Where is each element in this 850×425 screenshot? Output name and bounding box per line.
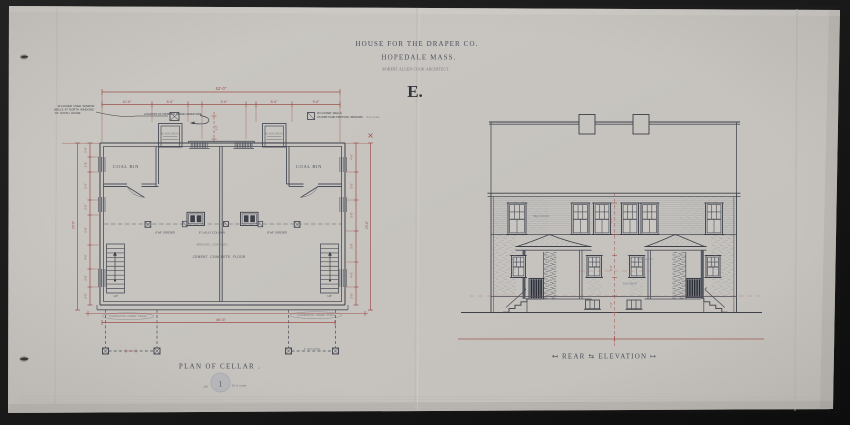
svg-text:PLAN OF CELLAR .: PLAN OF CELLAR . (179, 363, 261, 371)
svg-text:2'-6": 2'-6" (84, 204, 88, 209)
svg-text:UP: UP (327, 294, 331, 298)
svg-text:9" IRON PIPE: 9" IRON PIPE (304, 347, 320, 351)
svg-text:8'-6": 8'-6" (167, 100, 175, 104)
svg-text:5'-6": 5'-6" (350, 243, 354, 248)
svg-text:5'-0": 5'-0" (350, 183, 354, 188)
svg-text:UP: UP (113, 294, 117, 298)
svg-text:finish grade: finish grade (366, 115, 380, 119)
svg-text:E.: E. (407, 82, 423, 101)
svg-text:OF SOUTH HOUSE.: OF SOUTH HOUSE. (55, 111, 82, 115)
svg-text:7'-0": 7'-0" (609, 302, 613, 307)
svg-text:3'-6": 3'-6" (84, 275, 88, 280)
svg-text:HOUSE FOR THE DRAPER CO.: HOUSE FOR THE DRAPER CO. (356, 40, 479, 48)
svg-text:8'-6": 8'-6" (609, 217, 613, 222)
svg-text:9'-6": 9'-6" (313, 100, 321, 104)
svg-text:COAL BIN: COAL BIN (113, 164, 139, 169)
svg-text:6"x8" GIRDER: 6"x8" GIRDER (155, 231, 175, 235)
svg-text:No BULKHEAD: No BULKHEAD (265, 133, 283, 136)
svg-text:16 ft. scale: 16 ft. scale (232, 384, 247, 388)
svg-text:CEMENT CONCRETE FLOOR: CEMENT CONCRETE FLOOR (193, 255, 246, 259)
svg-text:HOPEDALE MASS.: HOPEDALE MASS. (382, 54, 457, 62)
svg-text:LOCATION OF 4"Ø BRICK CHASE UN: LOCATION OF 4"Ø BRICK CHASE UNDER SIDE (144, 112, 202, 116)
svg-text:8'-6": 8'-6" (271, 100, 279, 104)
svg-text:3'-0": 3'-0" (216, 125, 219, 130)
svg-text:No BULKHEAD: No BULKHEAD (161, 133, 179, 136)
svg-text:3'-0": 3'-0" (350, 293, 354, 298)
svg-text:2'-6": 2'-6" (84, 147, 88, 152)
svg-text:8"x8" GIRDER: 8"x8" GIRDER (267, 231, 287, 235)
svg-text:BRIDGING CENTERED: BRIDGING CENTERED (197, 243, 228, 247)
svg-text:W.I.COVER OVER WINDOW: W.I.COVER OVER WINDOW (58, 104, 95, 108)
svg-text:23'-6": 23'-6" (72, 221, 76, 229)
svg-text:5'-0": 5'-0" (84, 183, 88, 188)
svg-text:↤ REAR ⇆ ELEVATION ↦: ↤ REAR ⇆ ELEVATION ↦ (552, 353, 657, 361)
svg-text:52'-0": 52'-0" (216, 86, 227, 91)
svg-text:1: 1 (219, 380, 223, 389)
svg-text:6" LALLY COLUMN: 6" LALLY COLUMN (199, 231, 225, 235)
svg-text:5'-6": 5'-6" (221, 100, 229, 104)
svg-text:4'-0": 4'-0" (350, 272, 354, 277)
svg-text:5'-6": 5'-6" (84, 227, 88, 232)
svg-text:AT NORTH AND OPPOSITE WINDOWS: AT NORTH AND OPPOSITE WINDOWS (317, 116, 363, 119)
svg-text:FOUNDATION UNDER STEPS: FOUNDATION UNDER STEPS (297, 313, 335, 317)
svg-text:8'-0": 8'-0" (609, 265, 613, 270)
svg-text:46'-6": 46'-6" (216, 317, 227, 322)
svg-text:4'-6": 4'-6" (84, 254, 88, 259)
svg-text:3'-0": 3'-0" (84, 293, 88, 298)
svg-text:COAL BIN: COAL BIN (296, 164, 322, 169)
svg-text:FOUNDATION UNDER PIAZZA: FOUNDATION UNDER PIAZZA (109, 314, 147, 318)
svg-text:W.I.COVER WELLS: W.I.COVER WELLS (317, 111, 342, 115)
svg-text:WELLS AT NORTH WINDOWS: WELLS AT NORTH WINDOWS (54, 108, 94, 112)
svg-text:..au: ..au (202, 385, 208, 389)
svg-text:2'-6": 2'-6" (84, 162, 88, 167)
svg-text:5'-6": 5'-6" (350, 212, 354, 217)
svg-text:4'-6": 4'-6" (350, 154, 354, 159)
svg-text:23'-6": 23'-6" (365, 221, 369, 229)
svg-text:10'-6": 10'-6" (123, 100, 132, 104)
svg-text:ROBERT ALLEN COOK ARCHITECT.: ROBERT ALLEN COOK ARCHITECT. (382, 68, 449, 72)
